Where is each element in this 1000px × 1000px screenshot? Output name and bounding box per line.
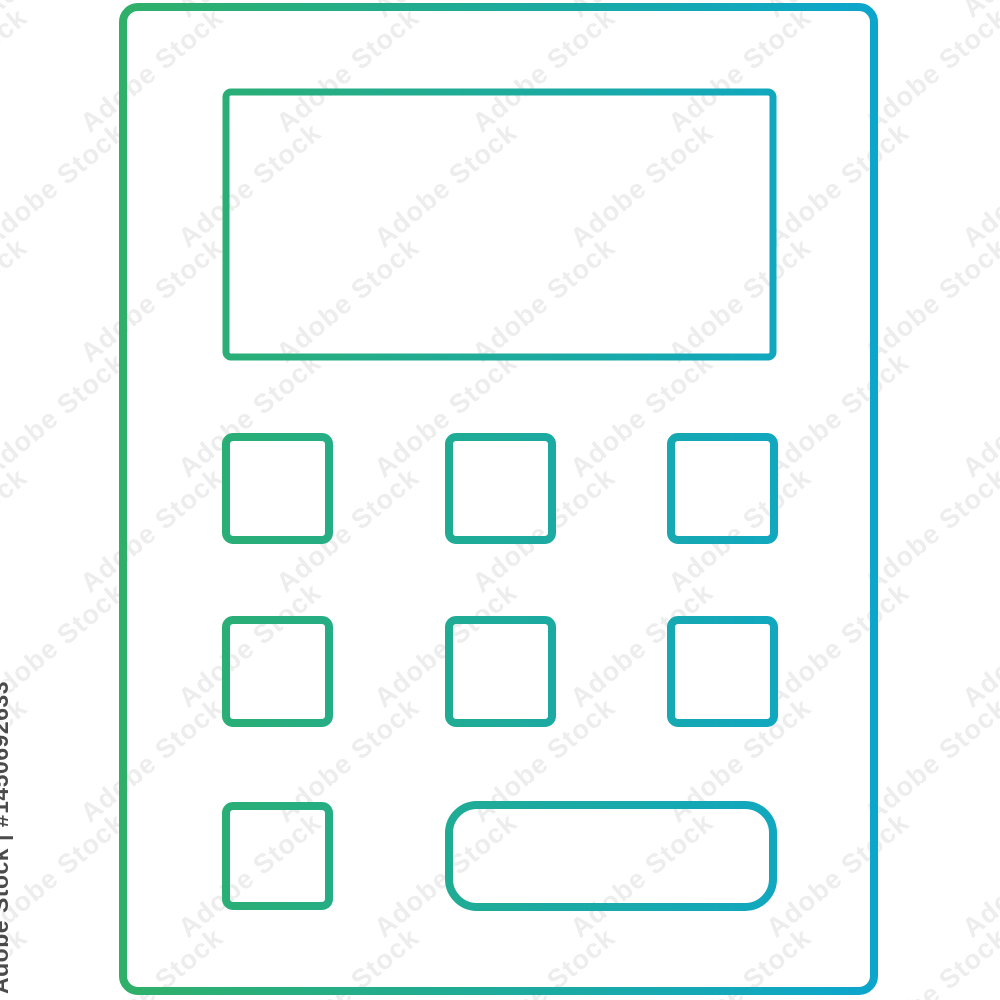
calculator-icon	[0, 0, 1000, 1000]
stock-image-canvas: Adobe StockAdobe StockAdobe StockAdobe S…	[0, 0, 1000, 1000]
calculator-button-r2c3	[671, 620, 774, 723]
calculator-body	[123, 7, 874, 991]
calculator-button-r2c2	[449, 620, 552, 723]
calculator-button-r3c1	[226, 806, 329, 906]
calculator-wide-button	[449, 805, 773, 907]
calculator-display	[226, 92, 773, 357]
calculator-button-r1c1	[226, 437, 329, 540]
calculator-button-r1c2	[449, 437, 552, 540]
calculator-button-r2c1	[226, 620, 329, 723]
calculator-button-r1c3	[671, 437, 774, 540]
watermark-id-label: Adobe Stock | #1450692633	[0, 681, 14, 994]
